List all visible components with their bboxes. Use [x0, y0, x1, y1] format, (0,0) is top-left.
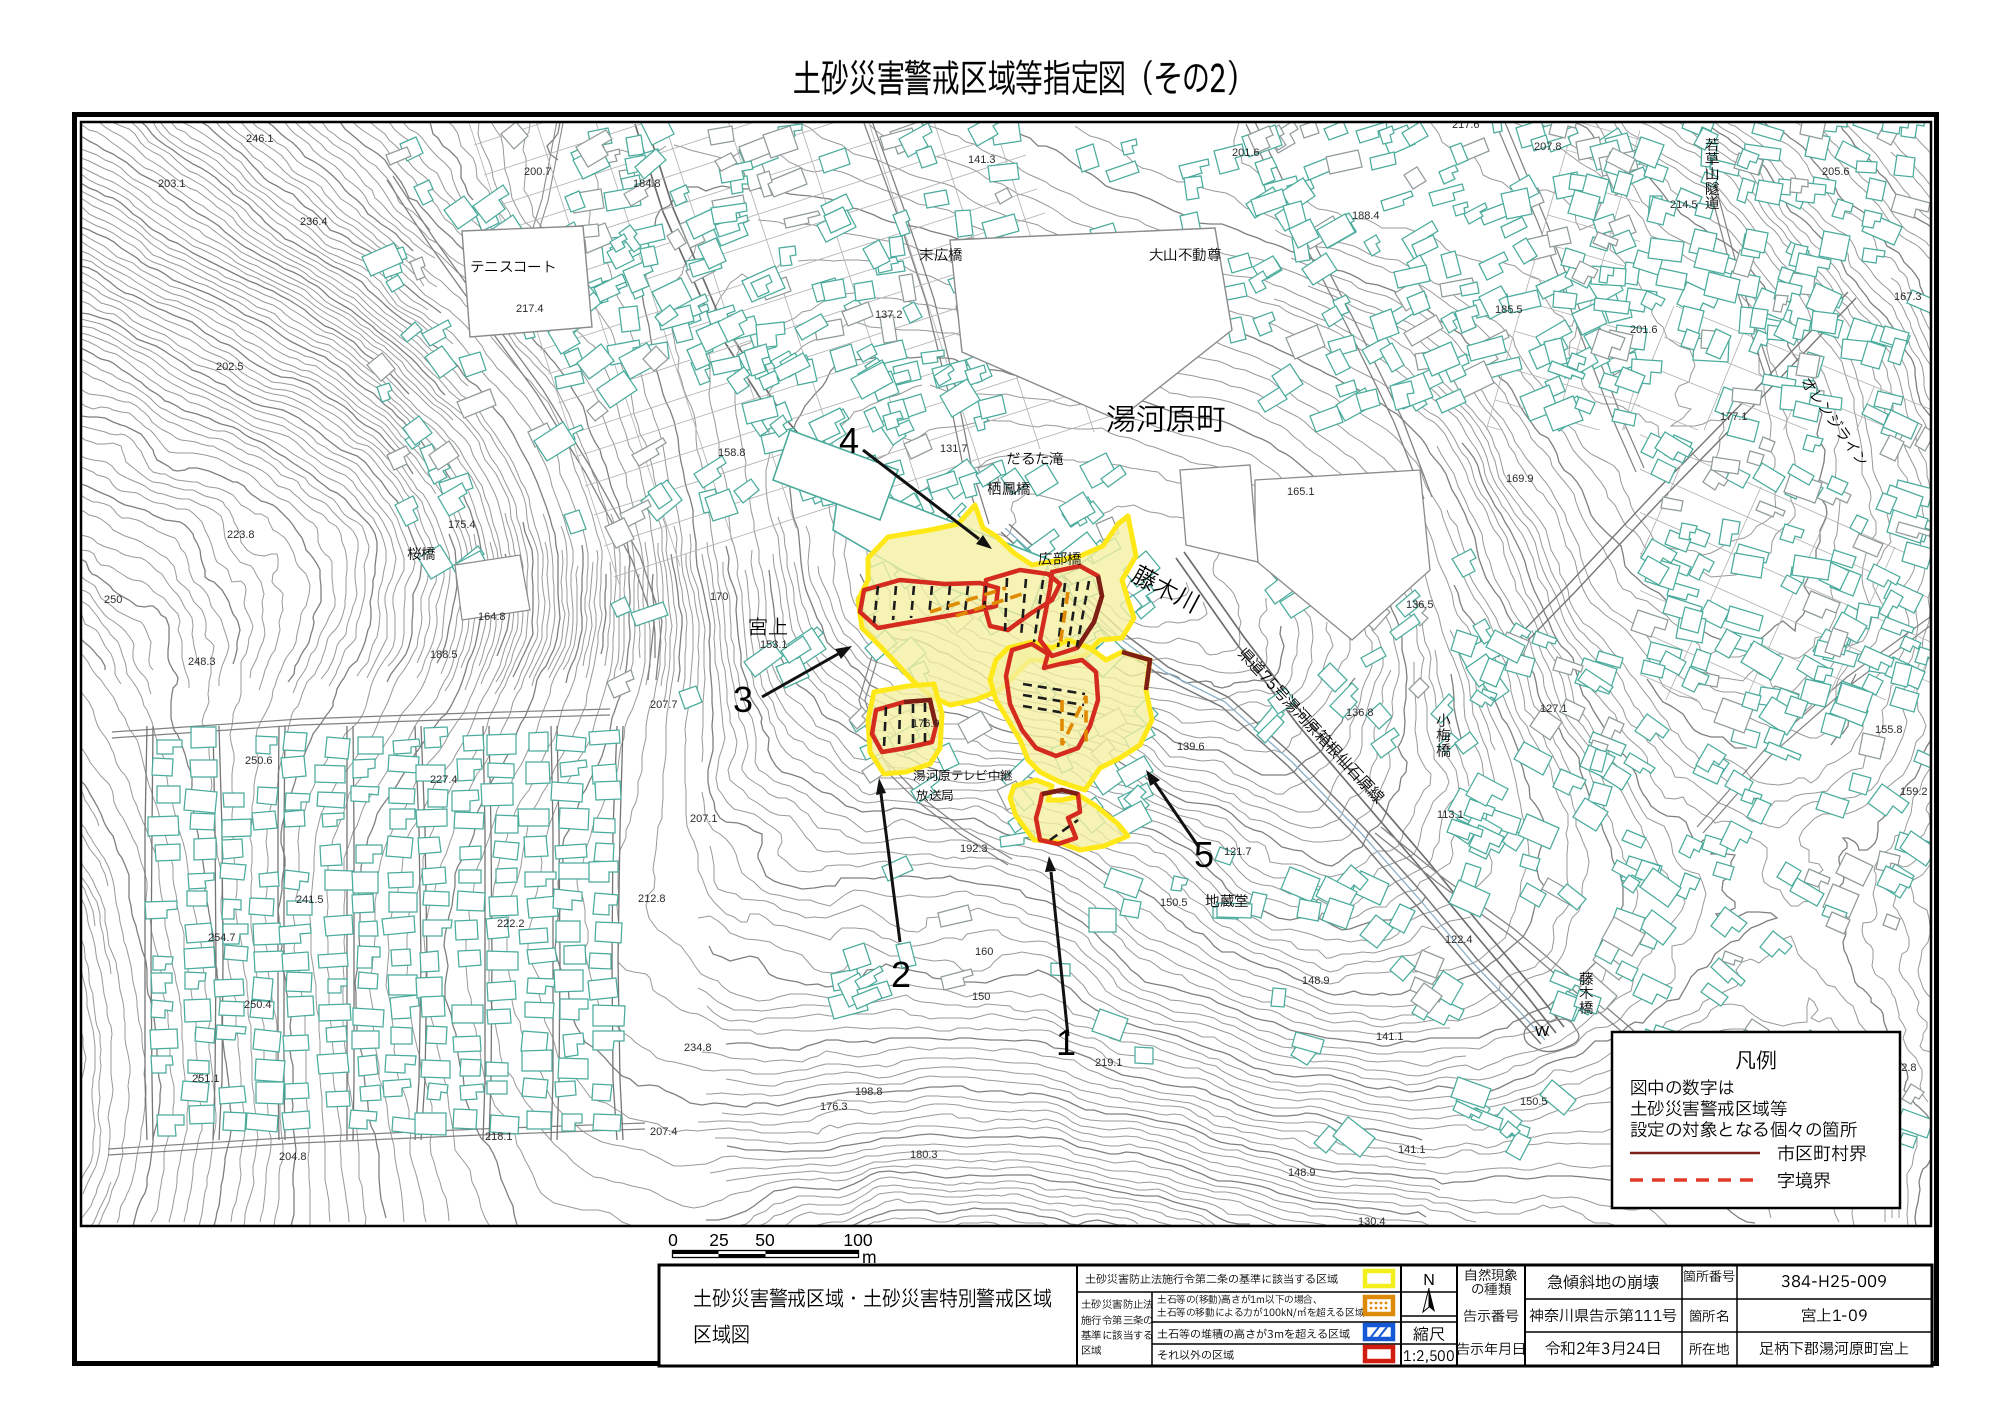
svg-text:W: W	[1535, 1023, 1550, 1040]
svg-text:236.4: 236.4	[300, 216, 328, 228]
svg-text:251.1: 251.1	[192, 1073, 220, 1085]
svg-text:1: 1	[1056, 1022, 1076, 1063]
svg-text:2: 2	[891, 954, 911, 995]
svg-text:148.9: 148.9	[1302, 975, 1330, 987]
svg-text:214.5: 214.5	[1670, 199, 1698, 211]
svg-text:177.1: 177.1	[1720, 411, 1748, 423]
svg-text:219.1: 219.1	[1095, 1057, 1123, 1069]
svg-text:158.8: 158.8	[718, 447, 746, 459]
svg-text:207.4: 207.4	[650, 1126, 678, 1138]
svg-text:227.4: 227.4	[430, 774, 458, 786]
svg-text:207.1: 207.1	[690, 813, 718, 825]
svg-text:250: 250	[104, 594, 122, 606]
svg-text:3: 3	[733, 679, 753, 720]
svg-text:207.7: 207.7	[650, 699, 678, 711]
svg-text:136.5: 136.5	[1406, 599, 1434, 611]
svg-text:192.3: 192.3	[960, 843, 988, 855]
svg-text:248.3: 248.3	[188, 656, 216, 668]
svg-text:250.6: 250.6	[245, 755, 273, 767]
svg-text:N: N	[1423, 1272, 1435, 1289]
svg-text:150: 150	[972, 991, 990, 1003]
svg-text:175.4: 175.4	[448, 519, 476, 531]
svg-text:234.8: 234.8	[684, 1042, 712, 1054]
svg-text:159.2: 159.2	[1900, 786, 1928, 798]
svg-text:153.1: 153.1	[760, 639, 788, 651]
svg-text:202.5: 202.5	[216, 361, 244, 373]
svg-text:139.6: 139.6	[1177, 741, 1205, 753]
svg-text:131.7: 131.7	[940, 443, 968, 455]
svg-text:4: 4	[839, 420, 859, 461]
svg-text:141.1: 141.1	[1376, 1031, 1404, 1043]
svg-text:164.8: 164.8	[478, 611, 506, 623]
svg-text:165.1: 165.1	[1287, 486, 1315, 498]
svg-text:113.1: 113.1	[1437, 809, 1464, 821]
svg-text:217.4: 217.4	[516, 303, 544, 315]
svg-text:5: 5	[1194, 834, 1214, 875]
svg-text:141.1: 141.1	[1398, 1144, 1426, 1156]
svg-text:198.8: 198.8	[855, 1086, 883, 1098]
svg-text:185.5: 185.5	[1495, 304, 1523, 316]
svg-text:141.3: 141.3	[968, 154, 996, 166]
svg-text:212.8: 212.8	[638, 893, 666, 905]
svg-text:176.3: 176.3	[820, 1101, 848, 1113]
svg-text:205.6: 205.6	[1822, 166, 1850, 178]
svg-text:250.4: 250.4	[244, 999, 272, 1011]
svg-text:150.5: 150.5	[1520, 1096, 1548, 1108]
svg-text:223.8: 223.8	[227, 529, 255, 541]
svg-text:254.7: 254.7	[208, 932, 236, 944]
svg-text:122.4: 122.4	[1445, 934, 1473, 946]
svg-text:184.8: 184.8	[633, 178, 661, 190]
svg-text:204.8: 204.8	[279, 1151, 307, 1163]
svg-text:167.3: 167.3	[1894, 291, 1922, 303]
svg-text:136.8: 136.8	[1346, 707, 1374, 719]
svg-text:155.8: 155.8	[1875, 724, 1903, 736]
svg-text:201.6: 201.6	[1630, 324, 1658, 336]
svg-text:188.5: 188.5	[430, 649, 458, 661]
svg-text:170: 170	[710, 591, 728, 603]
svg-text:222.2: 222.2	[497, 918, 525, 930]
svg-text:121.7: 121.7	[1224, 846, 1252, 858]
svg-text:176.9: 176.9	[912, 718, 940, 730]
svg-text:180.3: 180.3	[910, 1149, 938, 1161]
svg-text:203.1: 203.1	[158, 178, 186, 190]
svg-text:50: 50	[755, 1230, 775, 1250]
svg-text:25: 25	[709, 1230, 728, 1250]
svg-text:188.4: 188.4	[1352, 210, 1380, 222]
svg-text:127.1: 127.1	[1540, 703, 1568, 715]
svg-text:150.5: 150.5	[1160, 897, 1188, 909]
svg-text:201.6: 201.6	[1232, 147, 1260, 159]
svg-text:137.2: 137.2	[875, 309, 903, 321]
svg-text:160: 160	[975, 946, 993, 958]
svg-text:200.7: 200.7	[524, 166, 552, 178]
svg-text:169.9: 169.9	[1506, 473, 1534, 485]
svg-text:246.1: 246.1	[246, 133, 274, 145]
svg-text:148.9: 148.9	[1288, 1167, 1316, 1179]
svg-text:0: 0	[668, 1230, 678, 1250]
svg-text:241.5: 241.5	[296, 894, 324, 906]
svg-text:218.1: 218.1	[485, 1131, 513, 1143]
svg-text:207.8: 207.8	[1534, 141, 1562, 153]
